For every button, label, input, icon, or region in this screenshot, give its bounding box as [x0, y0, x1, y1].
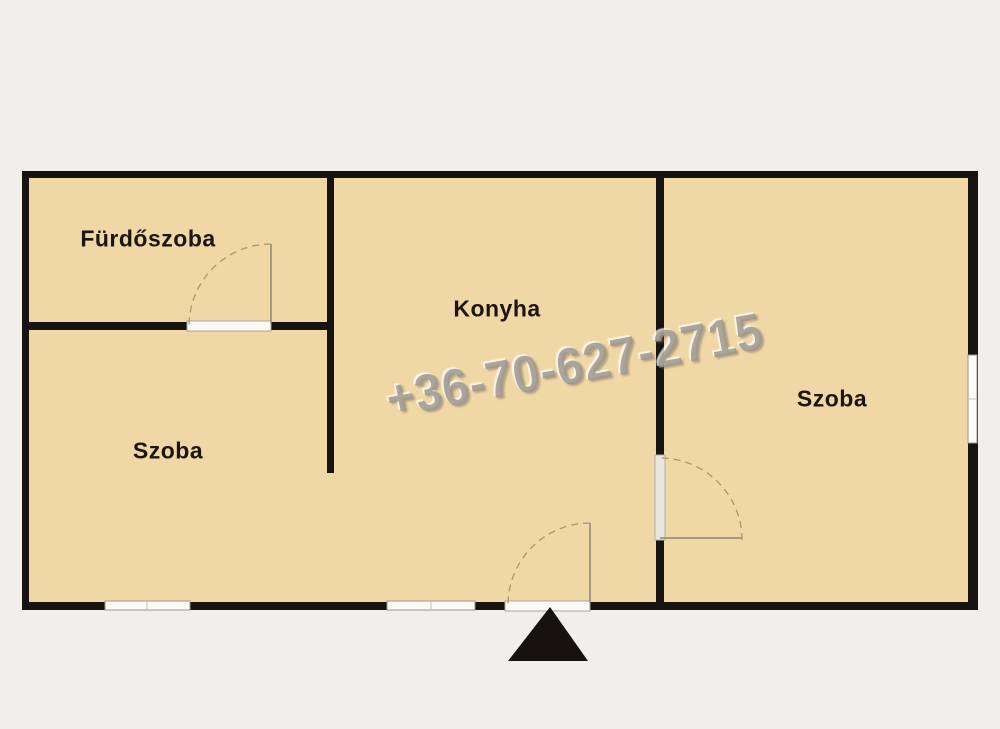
wall-left — [22, 171, 29, 610]
wall-top — [22, 171, 978, 178]
entry-door-opening — [505, 601, 590, 611]
entrance-marker-icon — [508, 607, 588, 661]
window-bottom-middle — [387, 601, 475, 610]
wall-bathroom-divider — [22, 322, 334, 330]
window-bottom-left — [105, 601, 190, 610]
bathroom-door-opening — [187, 321, 271, 331]
wall-right-room-lower — [656, 538, 664, 610]
room-label-szoba-left: Szoba — [133, 438, 203, 465]
room-label-szoba-right: Szoba — [797, 386, 867, 413]
room-label-furdoszoba: Fürdőszoba — [80, 226, 215, 253]
window-right — [968, 355, 977, 443]
room-label-konyha: Konyha — [453, 296, 540, 323]
floorplan-canvas: Fürdőszoba Szoba Konyha Szoba +36-70-627… — [0, 0, 1000, 729]
interior-door-opening — [655, 455, 665, 540]
wall-right-room-upper — [656, 171, 664, 457]
